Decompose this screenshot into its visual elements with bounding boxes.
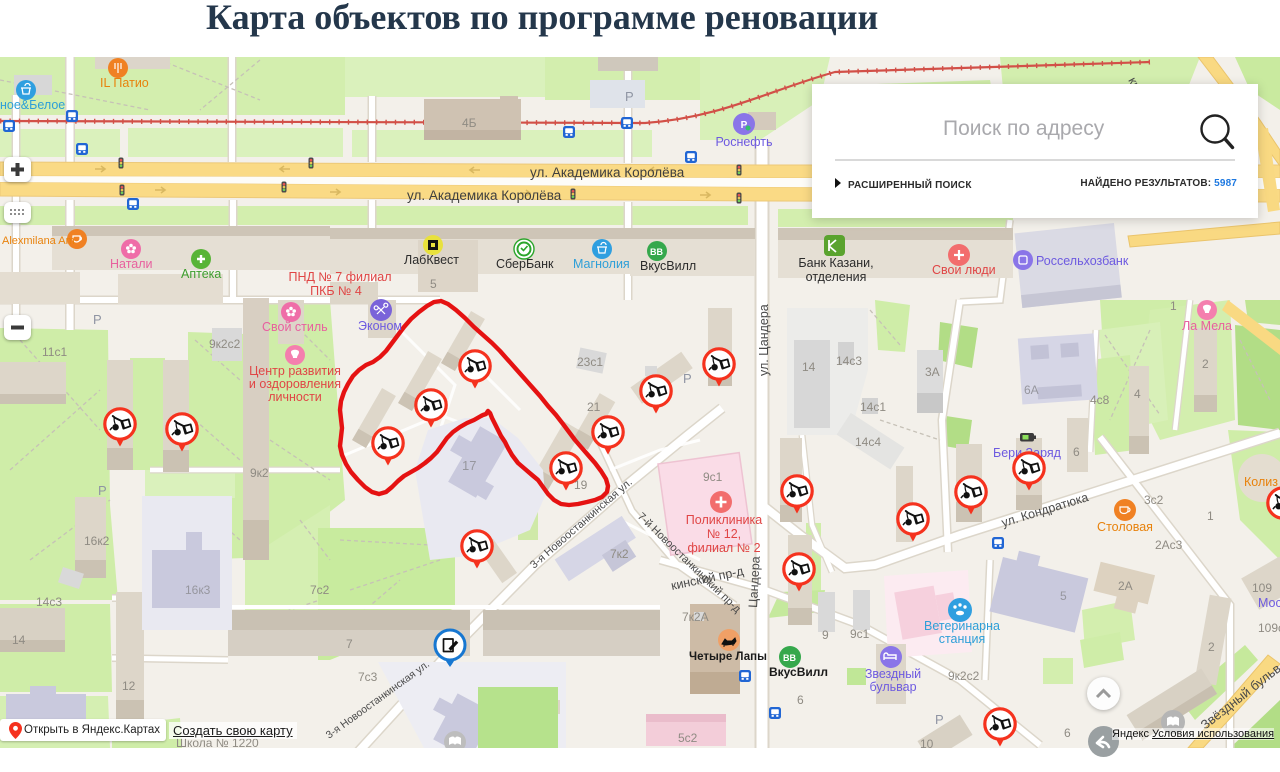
svg-text:бульвар: бульвар: [869, 680, 916, 694]
svg-text:и оздоровления: и оздоровления: [249, 377, 341, 391]
svg-text:3А: 3А: [925, 365, 940, 379]
svg-text:14с1: 14с1: [860, 400, 886, 414]
svg-text:109: 109: [1252, 581, 1272, 595]
svg-text:7к2А: 7к2А: [682, 610, 709, 624]
svg-text:7к2: 7к2: [610, 547, 629, 561]
svg-text:Свой стиль: Свой стиль: [262, 320, 328, 334]
svg-text:Р: Р: [98, 483, 107, 498]
svg-text:Эконом: Эконом: [358, 319, 402, 333]
svg-text:14: 14: [12, 633, 26, 647]
svg-text:Моск: Моск: [1258, 596, 1280, 610]
svg-text:Ветеринарна: Ветеринарна: [924, 619, 1000, 633]
svg-text:14с4: 14с4: [855, 435, 881, 449]
svg-text:СберБанк: СберБанк: [496, 257, 554, 271]
svg-text:9с1: 9с1: [850, 627, 870, 641]
svg-text:23с1: 23с1: [577, 355, 603, 369]
svg-text:6А: 6А: [1024, 383, 1039, 397]
svg-text:№ 12,: № 12,: [707, 527, 741, 541]
svg-text:Четыре Лапы: Четыре Лапы: [689, 651, 767, 663]
svg-text:109с: 109с: [1258, 621, 1280, 635]
svg-text:ул. Цандера: ул. Цандера: [757, 304, 771, 376]
svg-text:9к2с2: 9к2с2: [209, 337, 241, 351]
svg-text:7с3: 7с3: [358, 670, 378, 684]
svg-text:Р: Р: [683, 371, 692, 386]
svg-text:5с2: 5с2: [678, 731, 698, 745]
svg-text:личности: личности: [268, 390, 322, 404]
svg-text:6: 6: [1064, 726, 1071, 740]
svg-text:Р: Р: [93, 312, 102, 327]
svg-text:ное&Белое: ное&Белое: [0, 98, 65, 112]
svg-text:филиал № 2: филиал № 2: [687, 541, 760, 555]
svg-text:21: 21: [587, 400, 601, 414]
svg-text:станция: станция: [939, 632, 986, 646]
svg-text:отделения: отделения: [806, 270, 867, 284]
svg-text:ул. Академика Королёва: ул. Академика Королёва: [407, 188, 562, 203]
svg-text:ул. Академика Королёва: ул. Академика Королёва: [530, 165, 685, 180]
svg-text:6: 6: [1073, 445, 1080, 459]
svg-text:9к2: 9к2: [250, 466, 269, 480]
svg-text:Звездный: Звездный: [865, 667, 921, 681]
svg-text:ВВ: ВВ: [650, 247, 663, 257]
svg-text:14с3: 14с3: [836, 354, 862, 368]
svg-text:16к3: 16к3: [185, 583, 211, 597]
svg-text:2: 2: [1208, 640, 1215, 654]
svg-text:14: 14: [802, 360, 816, 374]
svg-text:4: 4: [1134, 387, 1141, 401]
svg-text:ЛабКвест: ЛабКвест: [404, 253, 459, 267]
svg-text:16к2: 16к2: [84, 534, 110, 548]
svg-text:14с3: 14с3: [36, 595, 62, 609]
svg-text:Ла Мела: Ла Мела: [1182, 319, 1232, 333]
svg-text:6: 6: [797, 693, 804, 707]
svg-text:ВкусВилл: ВкусВилл: [640, 259, 696, 273]
svg-text:2: 2: [1202, 357, 1209, 371]
svg-text:4с8: 4с8: [1090, 393, 1110, 407]
svg-text:Центр развития: Центр развития: [249, 364, 341, 378]
svg-text:Р: Р: [625, 89, 634, 104]
svg-text:2Ас3: 2Ас3: [1155, 538, 1183, 552]
svg-text:7: 7: [346, 637, 353, 651]
svg-text:11с1: 11с1: [42, 345, 67, 359]
svg-text:ПКБ № 4: ПКБ № 4: [310, 284, 362, 298]
svg-text:Alexmilana Am: Alexmilana Am: [2, 235, 75, 247]
svg-text:Поликлиника: Поликлиника: [686, 513, 762, 527]
svg-text:1: 1: [1207, 509, 1214, 523]
svg-text:ВкусВилл: ВкусВилл: [769, 665, 828, 679]
svg-text:5: 5: [430, 277, 437, 291]
svg-text:Натали: Натали: [110, 257, 153, 271]
svg-text:ПНД № 7 филиал: ПНД № 7 филиал: [288, 270, 391, 284]
svg-text:4Б: 4Б: [462, 116, 477, 130]
svg-text:Цандера: Цандера: [746, 556, 763, 608]
svg-text:2А: 2А: [1118, 579, 1133, 593]
svg-text:Р: Р: [935, 712, 944, 727]
svg-text:Банк Казани,: Банк Казани,: [798, 256, 873, 270]
svg-text:Свои люди: Свои люди: [932, 263, 996, 277]
svg-text:7с2: 7с2: [310, 583, 330, 597]
svg-text:3с2: 3с2: [1144, 493, 1164, 507]
svg-text:IL Патио: IL Патио: [100, 76, 149, 90]
svg-text:ВВ: ВВ: [783, 653, 796, 663]
svg-text:5: 5: [1060, 589, 1067, 603]
svg-text:9: 9: [822, 628, 829, 642]
svg-text:Россельхозбанк: Россельхозбанк: [1036, 254, 1129, 268]
svg-text:Роснефть: Роснефть: [715, 135, 772, 149]
svg-text:Колиз: Колиз: [1244, 475, 1278, 489]
svg-text:17: 17: [462, 458, 476, 473]
svg-text:Аптека: Аптека: [181, 267, 221, 281]
svg-text:12: 12: [122, 679, 136, 693]
svg-text:Магнолия: Магнолия: [573, 257, 630, 271]
svg-text:9к2с2: 9к2с2: [948, 669, 980, 683]
svg-text:Столовая: Столовая: [1097, 520, 1153, 534]
svg-text:9с1: 9с1: [703, 470, 723, 484]
svg-text:1: 1: [1170, 299, 1177, 313]
